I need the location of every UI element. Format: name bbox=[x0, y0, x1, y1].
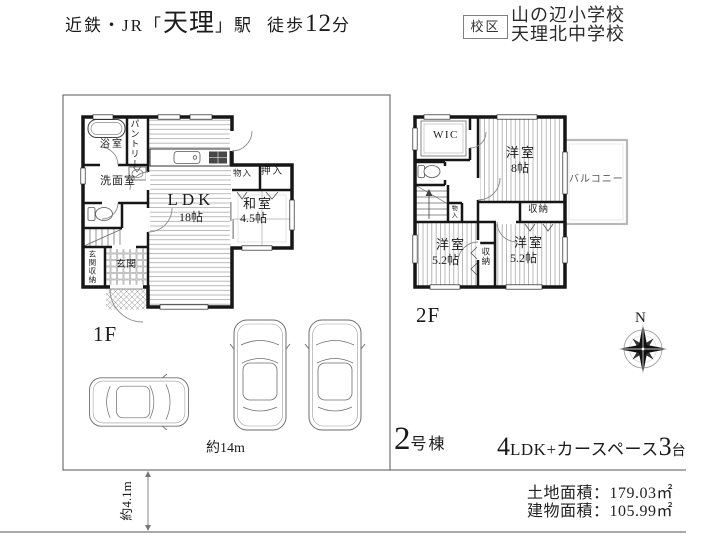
layout-text: LDK+カースペース bbox=[510, 440, 659, 459]
room-label-storage-small: 物入 bbox=[233, 169, 252, 178]
room-label-storage-b: 収納 bbox=[481, 247, 490, 283]
room-size-bedroom-main: 8帖 bbox=[511, 162, 529, 175]
station-name: 天理 bbox=[163, 10, 215, 37]
room-label-entrance-storage: 玄関収納 bbox=[88, 250, 96, 288]
room-label-bedroom-main: 洋室 bbox=[506, 146, 536, 160]
station-line-prefix: 近鉄・JR「 bbox=[65, 16, 163, 35]
room-label-bath: 浴室 bbox=[100, 140, 124, 151]
station-suffix: 」駅 bbox=[215, 16, 253, 35]
room-label-storage-c: 物入 bbox=[450, 205, 456, 221]
car-icon-2 bbox=[230, 320, 290, 430]
room-size-japanese-room: 4.5帖 bbox=[240, 212, 267, 225]
layout-spec-block: 4LDK+カースペース3台 bbox=[497, 433, 686, 460]
compass-north-label: N bbox=[635, 311, 646, 327]
building-area: 建物面積：105.99㎡ bbox=[527, 504, 673, 521]
car-unit: 台 bbox=[672, 444, 686, 459]
room-size-bedroom-right: 5.2帖 bbox=[510, 252, 537, 265]
frontage-dimension: 約14m bbox=[206, 442, 245, 457]
car-icons bbox=[90, 320, 366, 430]
room-label-closet: 押入 bbox=[261, 168, 284, 178]
floor-label-1f: 1F bbox=[93, 323, 117, 345]
room-label-wic: WIC bbox=[433, 130, 459, 142]
room-label-balcony: バルコニー bbox=[569, 175, 624, 186]
room-label-pantry: パントリー bbox=[129, 119, 138, 169]
land-area: 土地面積：179.03㎡ bbox=[527, 486, 673, 503]
layout-number: 4 bbox=[497, 432, 510, 461]
flyer-canvas: 近鉄・JR「天理」駅徒歩12分 校区 山の辺小学校 天理北中学校 1F 浴室 パ… bbox=[0, 0, 720, 540]
room-size-bedroom-left: 5.2帖 bbox=[432, 254, 459, 267]
elementary-school: 山の辺小学校 bbox=[511, 6, 625, 25]
junior-high-school: 天理北中学校 bbox=[511, 25, 625, 44]
walk-suffix: 分 bbox=[332, 16, 351, 35]
room-label-entrance: 玄関 bbox=[116, 261, 137, 271]
walk-minutes: 12 bbox=[305, 10, 332, 37]
room-label-ldk: LDK bbox=[162, 191, 220, 209]
car-icon-1 bbox=[90, 374, 189, 430]
dimension-road-width bbox=[145, 471, 151, 531]
room-label-washroom: 洗面室 bbox=[100, 176, 136, 188]
unit-number-block: 2号棟 bbox=[394, 422, 447, 457]
school-district-names: 山の辺小学校 天理北中学校 bbox=[511, 6, 625, 43]
walk-prefix: 徒歩 bbox=[267, 16, 305, 35]
room-label-storage-a: 収納 bbox=[528, 206, 549, 216]
room-label-bedroom-left: 洋室 bbox=[436, 238, 466, 252]
floor-label-2f: 2F bbox=[416, 304, 440, 326]
station-access-line: 近鉄・JR「天理」駅徒歩12分 bbox=[65, 11, 351, 37]
unit-number: 2 bbox=[394, 421, 411, 457]
unit-number-suffix: 号棟 bbox=[411, 436, 447, 453]
compass-icon bbox=[618, 324, 668, 374]
school-district-badge: 校区 bbox=[463, 15, 508, 39]
room-label-japanese-room: 和室 bbox=[243, 197, 273, 211]
road-width-dimension: 約4.1m bbox=[120, 475, 136, 527]
room-size-ldk: 18帖 bbox=[162, 211, 220, 224]
room-label-bedroom-right: 洋室 bbox=[514, 236, 544, 250]
car-count: 3 bbox=[659, 432, 672, 461]
car-icon-3 bbox=[305, 320, 365, 430]
